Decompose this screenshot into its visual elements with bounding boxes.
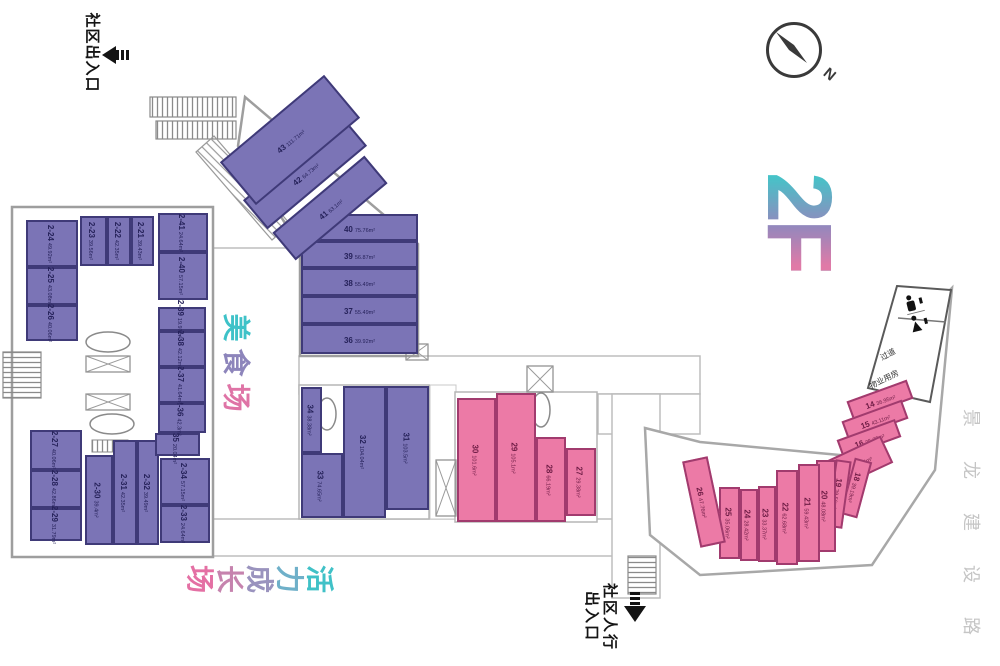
label-char: 出	[583, 591, 600, 606]
label-char: 口	[84, 76, 100, 91]
unit-30: 30101.6m²	[457, 398, 496, 522]
unit-label: 2159.43m²	[801, 497, 817, 528]
unit-label: 2866.19m²	[543, 464, 559, 495]
label-char: 区	[601, 600, 618, 615]
unit-number: 26	[695, 486, 706, 497]
unit-number: 40	[344, 225, 353, 234]
unit-22: 2262.68m²	[776, 470, 798, 565]
unit-label: 2048.08m²	[818, 490, 834, 521]
unit-number: 38	[344, 279, 353, 288]
unit-label: 2-3741.64m²	[174, 366, 190, 404]
unit-2-36: 2-3642.3m²	[158, 403, 206, 433]
floor-logo: 2F	[744, 150, 854, 292]
unit-label: 29105.1m²	[508, 442, 524, 473]
unit-area: 40.06m²	[50, 449, 56, 469]
unit-label: 2-3919.97m²	[174, 300, 190, 338]
unit-area: 42.35m²	[113, 240, 119, 260]
unit-number: 2-21	[137, 222, 146, 238]
unit-label: 2-3642.3m²	[174, 400, 190, 435]
unit-number: 2-34	[179, 462, 188, 478]
unit-area: 55.49m²	[355, 310, 375, 316]
unit-area: 39.56m²	[88, 240, 94, 260]
label-char: 龙	[945, 461, 997, 479]
unit-area: 20.04m²	[171, 443, 177, 463]
unit-label: 2-3324.64m²	[177, 505, 193, 543]
unit-number: 32	[359, 435, 368, 444]
arrow-down-head	[624, 606, 646, 622]
unit-area: 55.49m²	[355, 282, 375, 288]
floor-plan: 1436.95m²1543.11m²1635.73m²1755.54m²1839…	[0, 0, 1000, 666]
unit-area: 33.37m²	[761, 519, 767, 539]
unit-number: 2-37	[176, 366, 185, 382]
unit-area: 101.6m²	[471, 455, 477, 475]
unit-label: 4075.76m²	[344, 220, 375, 236]
unit-label: 3755.49m²	[344, 302, 375, 318]
unit-number: 2-27	[50, 431, 59, 447]
unit-number: 28	[545, 464, 554, 473]
unit-area: 75.76m²	[355, 228, 375, 234]
unit-label: 2-3039.4m²	[91, 482, 107, 517]
unit-label: 2-2740.06m²	[48, 431, 64, 469]
unit-number: 2-25	[46, 267, 55, 283]
unit-number: 18	[852, 471, 863, 482]
pedestrian-entrance-label-1: 社区人行	[602, 582, 617, 650]
unit-label: 30101.6m²	[469, 444, 485, 475]
unit-label: 2428.42m²	[741, 509, 757, 540]
unit-29: 29105.1m²	[496, 393, 536, 522]
unit-2-41: 2-4124.64m²	[158, 213, 208, 252]
unit-area: 103.5m²	[402, 443, 408, 463]
unit-label: 2647.76m²	[693, 485, 715, 519]
unit-number: 2-41	[177, 213, 186, 229]
unit-area: 59.43m²	[803, 508, 809, 528]
unit-37: 3755.49m²	[301, 296, 418, 324]
unit-2-24: 2-2449.92m²	[26, 220, 78, 267]
unit-area: 42.3m²	[176, 418, 182, 435]
unit-area: 42.12m²	[176, 348, 182, 368]
unit-number: 2-22	[113, 222, 122, 238]
arrow-left-tail	[116, 50, 130, 60]
label-char: 活	[301, 565, 341, 595]
unit-area: 64.73m²	[301, 163, 320, 181]
unit-area: 24.64m²	[177, 231, 183, 251]
label-char: 出	[84, 44, 100, 59]
unit-number: 2-30	[93, 482, 102, 498]
unit-34: 3438.38m²	[301, 387, 322, 453]
unit-label: 2-2242.35m²	[111, 222, 127, 260]
unit-area: 41.64m²	[176, 384, 182, 404]
unit-number: 2-33	[179, 505, 188, 521]
label-char: 路	[945, 617, 997, 635]
unit-area: 57.15m²	[177, 275, 183, 295]
entrance-arrow-icon	[102, 46, 130, 64]
unit-33: 3374.65m²	[301, 453, 343, 518]
unit-area: 39.43m²	[137, 240, 143, 260]
arrow-down-tail	[630, 592, 640, 606]
unit-2-21: 2-2139.43m²	[131, 216, 154, 266]
arrow-left-head	[102, 46, 116, 64]
unit-23: 2333.37m²	[758, 486, 776, 562]
unit-label: 2-2339.56m²	[86, 222, 102, 260]
unit-label: 32104.04m²	[357, 435, 373, 469]
unit-area: 31.79m²	[50, 523, 56, 543]
unit-2-23: 2-2339.56m²	[80, 216, 107, 266]
unit-area: 49.92m²	[46, 242, 52, 262]
unit-label: 3639.92m²	[344, 331, 375, 347]
unit-label: 2-2842.86m²	[48, 470, 64, 508]
unit-number: 2-28	[50, 470, 59, 486]
unit-number: 2-40	[177, 257, 186, 273]
unit-24: 2428.42m²	[740, 489, 758, 561]
unit-label: 31103.5m²	[400, 432, 416, 463]
unit-2-40: 2-4057.15m²	[158, 252, 208, 300]
unit-label: 2729.38m²	[573, 466, 589, 497]
label-char: 区	[84, 28, 100, 43]
unit-number: 30	[471, 444, 480, 453]
unit-layer: 1436.95m²1543.11m²1635.73m²1755.54m²1839…	[0, 0, 1000, 666]
unit-2-33: 2-3324.64m²	[160, 505, 210, 543]
unit-2-37: 2-3741.64m²	[158, 367, 206, 403]
unit-label: 2-3142.35m²	[117, 473, 133, 511]
floor-label: 2F	[747, 171, 852, 270]
unit-number: 23	[761, 508, 770, 517]
unit-area: 62.68m²	[781, 513, 787, 533]
unit-2-39: 2-3919.97m²	[158, 307, 206, 331]
unit-2-31: 2-3142.35m²	[113, 440, 137, 545]
unit-label: 2-2543.08m²	[44, 267, 60, 305]
unit-area: 19.97m²	[176, 318, 182, 338]
unit-label: 3956.87m²	[344, 247, 375, 263]
unit-number: 34	[306, 404, 315, 413]
unit-2-22: 2-2242.35m²	[107, 216, 131, 266]
unit-number: 33	[316, 470, 325, 479]
unit-2-29: 2-2931.79m²	[30, 508, 82, 541]
label-char: 设	[945, 565, 997, 583]
label-char: 人	[601, 617, 618, 632]
compass-icon: N	[766, 22, 822, 78]
label-char: 美	[219, 313, 254, 341]
unit-38: 3855.49m²	[301, 268, 418, 296]
unit-number: 2-26	[46, 304, 55, 320]
unit-2-35: 2-3520.04m²	[155, 433, 200, 456]
unit-area: 56.87m²	[355, 255, 375, 261]
unit-label: 2-3457.15m²	[177, 462, 193, 500]
exit-arrow-icon	[624, 592, 646, 622]
unit-label: 3855.49m²	[344, 274, 375, 290]
unit-2-34: 2-3457.15m²	[160, 458, 210, 505]
unit-area: 39.4m²	[93, 500, 99, 517]
unit-label: 3374.65m²	[314, 470, 330, 501]
unit-label: 2-2931.79m²	[48, 505, 64, 543]
unit-label: 2-2640.06m²	[44, 304, 60, 342]
unit-area: 48.08m²	[820, 501, 826, 521]
unit-25: 2535.06m²	[719, 487, 740, 559]
unit-area: 39.49m²	[142, 491, 148, 511]
unit-area: 63.1m²	[328, 199, 345, 215]
unit-27: 2729.38m²	[566, 448, 596, 516]
unit-39: 3956.87m²	[301, 241, 418, 268]
label-char: 社	[84, 12, 100, 27]
label-char: 入	[84, 60, 100, 75]
unit-number: 24	[743, 509, 752, 518]
unit-number: 31	[402, 432, 411, 441]
label-char: 景	[945, 409, 997, 427]
label-char: 场	[219, 383, 254, 411]
unit-label: 3438.38m²	[304, 404, 320, 435]
unit-32: 32104.04m²	[343, 386, 386, 518]
unit-21: 2159.43m²	[798, 464, 820, 562]
community-entrance-label: 社区出入口	[84, 12, 99, 92]
unit-area: 57.15m²	[179, 480, 185, 500]
label-char: 建	[945, 513, 997, 531]
unit-2-28: 2-2842.86m²	[30, 470, 82, 508]
unit-label: 2-4057.15m²	[175, 257, 191, 295]
vitality-zone-label: 场长成力活	[186, 560, 336, 600]
unit-label: 2-3239.49m²	[140, 473, 156, 511]
unit-label: 2-4124.64m²	[175, 213, 191, 251]
unit-2-25: 2-2543.08m²	[26, 267, 78, 305]
label-char: 口	[583, 625, 600, 640]
compass-needle-icon	[769, 25, 813, 69]
unit-number: 2-23	[88, 222, 97, 238]
unit-number: 25	[724, 507, 733, 516]
unit-number: 2-32	[142, 473, 151, 489]
food-court-label: 美食场	[222, 310, 250, 415]
unit-label: 2262.68m²	[779, 502, 795, 533]
unit-number: 21	[803, 497, 812, 506]
unit-number: 2-31	[119, 473, 128, 489]
unit-area: 43.08m²	[46, 285, 52, 305]
unit-area: 39.92m²	[355, 339, 375, 345]
unit-area: 111.71m²	[286, 129, 307, 148]
unit-area: 38.38m²	[306, 415, 312, 435]
unit-label: 4163.1m²	[314, 193, 346, 223]
unit-label: 2333.37m²	[759, 508, 775, 539]
unit-area: 42.35m²	[119, 491, 125, 511]
unit-number: 20	[820, 490, 829, 499]
unit-label: 2-2449.92m²	[44, 224, 60, 262]
unit-number: 37	[344, 307, 353, 316]
unit-label: 2-2139.43m²	[135, 222, 151, 260]
unit-28: 2866.19m²	[536, 437, 566, 522]
unit-2-30: 2-3039.4m²	[85, 455, 113, 545]
unit-label: 43111.71m²	[272, 123, 308, 157]
unit-area: 74.65m²	[316, 481, 322, 501]
unit-area: 24.64m²	[179, 523, 185, 543]
unit-2-27: 2-2740.06m²	[30, 430, 82, 470]
unit-area: 29.38m²	[575, 477, 581, 497]
unit-number: 2-24	[46, 224, 55, 240]
road-name-label: 景龙建设路	[962, 392, 980, 652]
unit-number: 2-39	[176, 300, 185, 316]
unit-31: 31103.5m²	[386, 386, 429, 510]
unit-number: 29	[510, 442, 519, 451]
unit-number: 36	[344, 336, 353, 345]
unit-number: 27	[575, 466, 584, 475]
label-char: 社	[601, 583, 618, 598]
unit-number: 39	[344, 252, 353, 261]
unit-area: 47.76m²	[697, 497, 707, 518]
unit-36: 3639.92m²	[301, 324, 418, 354]
label-char: 行	[601, 634, 618, 649]
unit-area: 66.19m²	[545, 475, 551, 495]
unit-area: 105.1m²	[510, 453, 516, 473]
unit-area: 28.42m²	[743, 520, 749, 540]
unit-area: 40.06m²	[46, 322, 52, 342]
unit-number: 2-29	[50, 505, 59, 521]
label-char: 入	[583, 608, 600, 623]
unit-area: 104.04m²	[359, 446, 365, 469]
unit-2-26: 2-2640.06m²	[26, 305, 78, 341]
pedestrian-entrance-label-2: 出入口	[584, 590, 599, 641]
label-char: 食	[219, 348, 254, 376]
unit-number: 22	[781, 502, 790, 511]
